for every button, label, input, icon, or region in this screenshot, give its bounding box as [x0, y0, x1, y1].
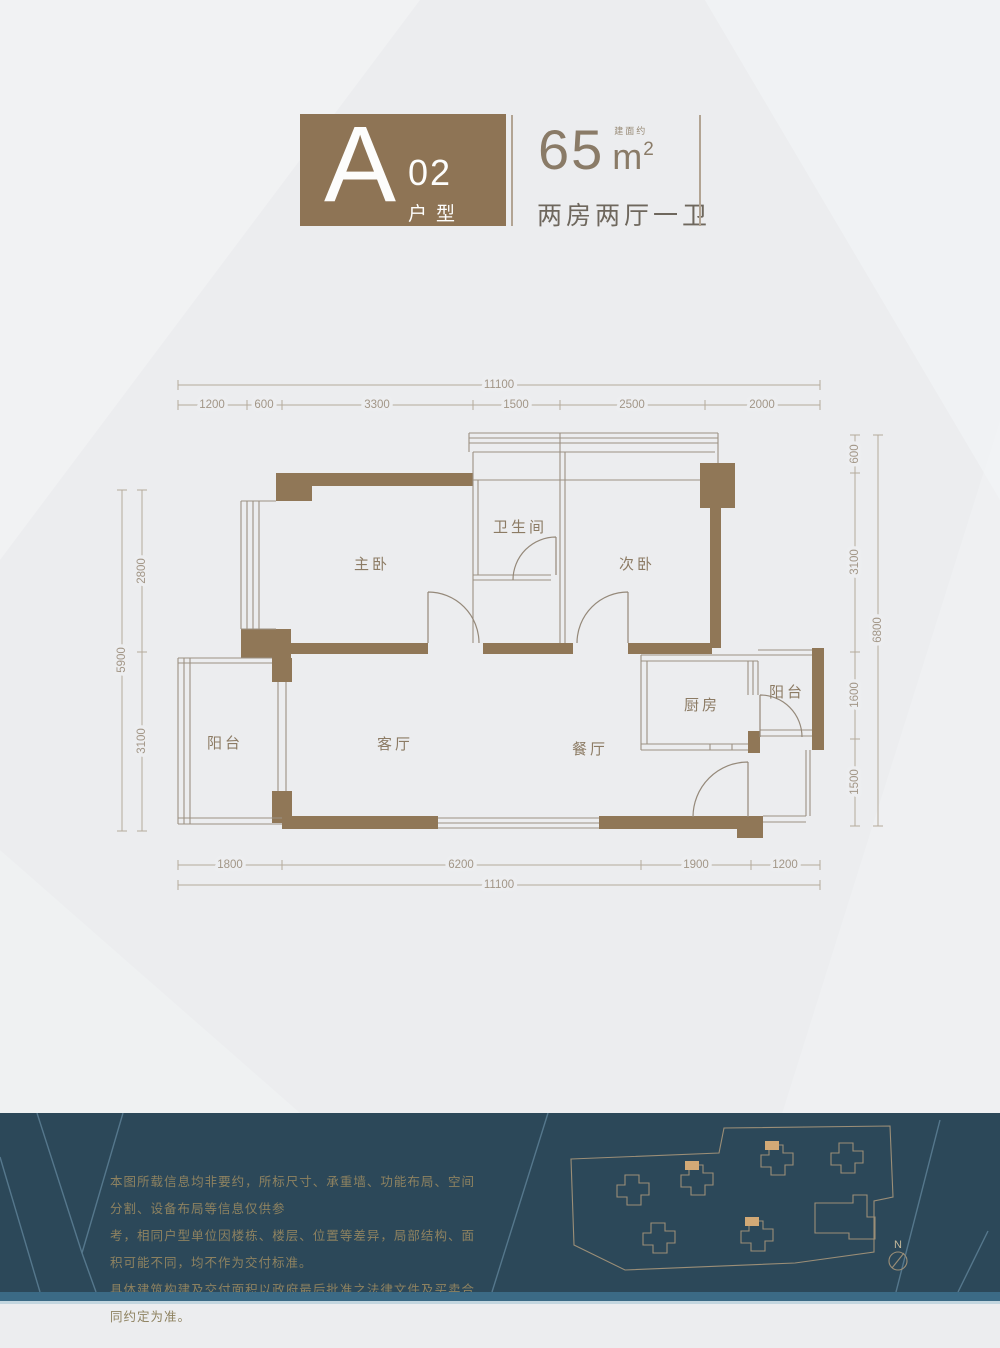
north-label: N [894, 1239, 902, 1251]
footer-accent-line [0, 1301, 1000, 1304]
compass-needle [892, 1253, 904, 1268]
site-boundary [571, 1126, 893, 1270]
balcony-door-arc [760, 695, 802, 737]
area-group: 65建面约m2 [538, 122, 654, 178]
svg-text:6200: 6200 [448, 859, 474, 871]
dimension-bottom: 1800 6200 1900 1200 11100 [178, 859, 820, 891]
svg-text:2500: 2500 [619, 399, 645, 411]
svg-text:5900: 5900 [116, 647, 128, 673]
dim-top-total: 11100 [484, 379, 514, 391]
svg-text:11100: 11100 [484, 879, 514, 891]
svg-text:1200: 1200 [199, 399, 225, 411]
disclaimer-line: 具体建筑构建及交付面积以政府最后批准之法律文件及买卖合同约定为准。 [110, 1277, 475, 1331]
room-master: 主卧 [354, 556, 390, 573]
area-prefix: 建面约 [614, 124, 647, 137]
room-dining: 餐厅 [572, 741, 608, 758]
area-unit: m [612, 136, 642, 177]
master-door-arc [428, 592, 479, 643]
unit-type-label: 户型 [408, 199, 464, 226]
room-second: 次卧 [619, 556, 655, 573]
svg-text:3100: 3100 [849, 549, 861, 575]
unit-letter: A [324, 100, 396, 227]
svg-text:2800: 2800 [136, 558, 148, 584]
site-plan: N [543, 1117, 1000, 1289]
svg-text:1600: 1600 [849, 682, 861, 708]
disclaimer-line: 本图所载信息均非要约，所标尺寸、承重墙、功能布局、空间分割、设备布局等信息仅供参 [110, 1169, 475, 1223]
svg-text:1800: 1800 [217, 859, 243, 871]
header-divider [511, 115, 513, 226]
unit-code: 02 [408, 152, 464, 194]
room-living: 客厅 [377, 736, 413, 753]
room-balcony-left: 阳台 [207, 735, 243, 752]
dimension-right: 600 3100 1600 1500 6800 [849, 435, 884, 826]
disclaimer-text: 本图所载信息均非要约，所标尺寸、承重墙、功能布局、空间分割、设备布局等信息仅供参… [110, 1169, 475, 1331]
doors [428, 537, 802, 817]
dimension-top: 11100 1200 600 3300 1500 2500 2000 [178, 379, 820, 411]
unit-badge: A 02 户型 [300, 114, 506, 226]
svg-text:1900: 1900 [683, 859, 709, 871]
area-superscript: 2 [643, 139, 654, 160]
svg-text:2000: 2000 [749, 399, 775, 411]
bathroom-door-arc [513, 537, 556, 580]
room-kitchen: 厨房 [684, 697, 720, 714]
north-compass: N [889, 1239, 907, 1270]
footer-accent-strip [0, 1292, 1000, 1301]
area-number: 65 [538, 118, 604, 181]
svg-text:3300: 3300 [364, 399, 390, 411]
footer-band: 本图所载信息均非要约，所标尺寸、承重墙、功能布局、空间分割、设备布局等信息仅供参… [0, 1113, 1000, 1292]
layout-description: 两房两厅一卫 [537, 196, 711, 232]
second-bedroom-door-arc [577, 592, 628, 643]
disclaimer-line: 考，相同户型单位因楼栋、楼层、位置等差异，局部结构、面积可能不同，均不作为交付标… [110, 1223, 475, 1277]
svg-text:600: 600 [254, 399, 273, 411]
svg-text:1200: 1200 [772, 859, 798, 871]
svg-text:6800: 6800 [872, 617, 884, 643]
svg-text:3100: 3100 [136, 728, 148, 754]
entry-door-arc [693, 762, 748, 817]
svg-text:600: 600 [849, 444, 861, 463]
room-bath: 卫生间 [493, 519, 547, 536]
dimension-left: 5900 2800 3100 [116, 490, 148, 831]
floorplan-flyer: A 02 户型 65建面约m2 两房两厅一卫 11100 1200 600 33… [0, 0, 1000, 1348]
svg-text:1500: 1500 [849, 769, 861, 795]
unit-sub: 02 户型 [408, 152, 464, 226]
room-balcony-right: 阳台 [769, 684, 805, 701]
svg-text:1500: 1500 [503, 399, 529, 411]
building-outlines [617, 1143, 875, 1253]
header-divider [699, 115, 701, 226]
floor-plan: 11100 1200 600 3300 1500 2500 2000 5900 … [100, 365, 900, 915]
